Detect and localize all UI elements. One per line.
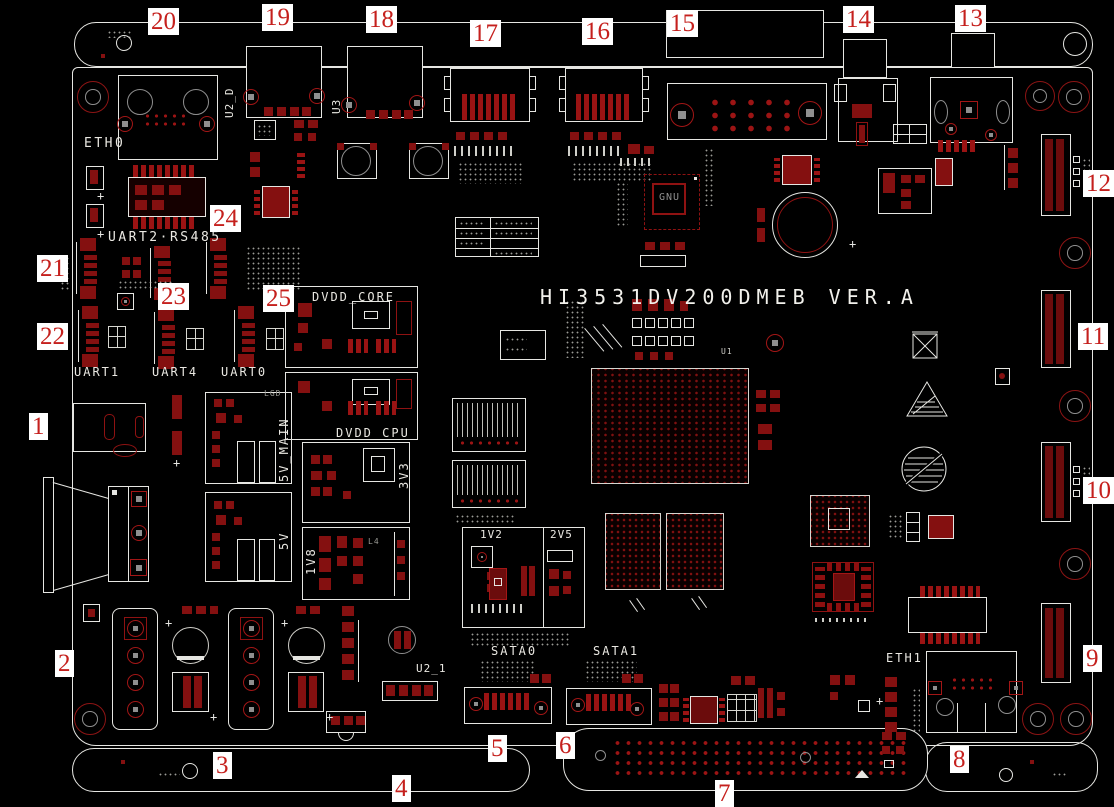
regulator-1v2-2v5 (462, 527, 585, 628)
smd-pad (628, 144, 640, 154)
smd-pad (882, 732, 892, 740)
resistor-pair (266, 328, 284, 350)
orientation-triangle (855, 770, 869, 778)
sata-pins (484, 693, 532, 710)
callout-19: 19 (262, 4, 293, 31)
uart-footprint (234, 306, 264, 366)
mounting-hole (1059, 390, 1091, 422)
smd-pad (404, 110, 413, 119)
db9-screw-post (670, 103, 694, 127)
capacitor-pad (90, 208, 98, 222)
smd-pad (1073, 478, 1080, 485)
mounting-hole (1058, 81, 1090, 113)
dvdd-core-label: DVDD_CORE (312, 291, 395, 303)
stipple (455, 514, 515, 524)
stipple (616, 182, 628, 226)
smd-pad (884, 760, 894, 768)
ddr-chip (666, 513, 724, 590)
bottom-left-rail-hole (182, 763, 198, 779)
callout-4: 4 (392, 775, 411, 802)
fiducial-dot (999, 373, 1005, 379)
callout-3: 3 (213, 752, 232, 779)
header-11-pins (1056, 294, 1064, 364)
power-pin (127, 620, 144, 637)
smd-pad (671, 318, 681, 328)
sata-post (469, 697, 483, 711)
cap-stripe (177, 656, 204, 660)
regulator-1v8 (302, 527, 410, 600)
soic-pins (133, 165, 197, 177)
db9-screw-post (798, 101, 822, 125)
ddr-chip (605, 513, 661, 590)
switch-pin (130, 559, 147, 576)
mounting-hole (1059, 237, 1091, 269)
cap-pad (409, 143, 416, 150)
smd-pad (250, 167, 260, 177)
qfp-pins (292, 189, 298, 215)
stipple (458, 162, 522, 184)
smd-pad (645, 242, 655, 250)
regulator-3v3 (302, 442, 410, 523)
db9-pins (706, 96, 798, 132)
electrolytic-cap (341, 146, 371, 176)
header-10-pins (1045, 446, 1053, 518)
soic-pins (920, 586, 980, 597)
smd-pad (290, 107, 299, 116)
crossed-box-symbol (911, 330, 939, 362)
uart0-label: UART0 (221, 366, 267, 378)
power-pin (127, 647, 144, 664)
smd-pad (758, 424, 772, 434)
sata1-label: SATA1 (593, 645, 639, 657)
uart-footprint (154, 308, 184, 368)
smd-pad (182, 606, 192, 614)
smd-pad (342, 670, 354, 680)
refdes-u3: U3 (331, 99, 342, 114)
polarity-mark: + (281, 618, 288, 628)
smd-pad (530, 674, 539, 683)
qfn-chip (812, 562, 874, 612)
mounting-hole (74, 703, 106, 735)
revision-table (455, 217, 539, 257)
eth1-pin-hole (936, 698, 954, 716)
smd-pad (665, 352, 673, 360)
rail-2v5-label: 2V5 (550, 529, 573, 540)
polarity-mark: + (326, 712, 333, 722)
callout-13: 13 (955, 5, 986, 32)
resistor-bank (906, 512, 920, 542)
chip (935, 158, 953, 186)
power-pin (243, 647, 260, 664)
pin1-dot (694, 177, 697, 180)
smd-pad (859, 125, 865, 143)
resistor-pair (186, 328, 204, 350)
mounting-hole (1025, 81, 1055, 111)
callout-11: 11 (1078, 323, 1108, 350)
pin-row (620, 158, 654, 166)
pin-column (297, 150, 305, 178)
rail-3v3-label: 3V3 (398, 461, 410, 489)
bottom-right-rail-hole (999, 768, 1013, 782)
smd-pad (379, 110, 388, 119)
header-10-pins (1056, 446, 1064, 518)
hdmi-tab (444, 98, 451, 112)
cap-pad (370, 143, 377, 150)
smd-pad (1008, 148, 1018, 158)
jack-slot-pad (104, 414, 115, 440)
smd-pad (308, 133, 316, 141)
mounting-hole (1059, 548, 1091, 580)
smd-pad (277, 107, 286, 116)
smd-pad (294, 120, 304, 128)
rail-stipple (158, 772, 180, 778)
fiducial-dot (88, 609, 95, 617)
smd-pad (296, 606, 306, 614)
eth1-shield-pad (1009, 681, 1023, 695)
usb-mount-pad (243, 89, 259, 105)
battery-plus: + (849, 239, 856, 249)
smd-pad (133, 270, 141, 278)
eth0-pins (143, 112, 191, 130)
polarity-mark: + (165, 618, 172, 628)
eth0-shield-pad (199, 116, 215, 132)
smd-pad (634, 674, 643, 683)
header-12-pins (1056, 139, 1064, 211)
pin-row (568, 146, 624, 156)
smd-pad (133, 257, 141, 265)
component-cluster (655, 668, 785, 728)
uart4-label: UART4 (152, 366, 198, 378)
inductor (172, 672, 209, 712)
header-9-pins (1045, 608, 1053, 678)
component-outline (640, 255, 686, 267)
smd-pad (885, 707, 897, 717)
smd-pad (632, 318, 642, 328)
stipple (888, 514, 902, 538)
refdes-u2-1: U2_1 (416, 663, 447, 674)
stipple (704, 148, 714, 206)
smd-pad (484, 132, 493, 140)
smd-pad (1008, 163, 1018, 173)
callout-20: 20 (148, 8, 179, 35)
usb-mount-pad (409, 95, 425, 111)
chip-pad (135, 185, 147, 195)
clock-chip-label: GNU (659, 194, 680, 202)
polarity-mark: + (97, 191, 104, 201)
rail-marker-dot (1030, 760, 1034, 764)
flex-connector (452, 398, 526, 452)
usb-mount-pad (309, 88, 325, 104)
polarity-mark: + (97, 229, 104, 239)
fiducial-dot (766, 334, 784, 352)
chip-pad (169, 185, 181, 195)
dvdd-cpu-label: DVDD_CPU (336, 427, 410, 439)
smd-pad (498, 132, 507, 140)
smd-pad (645, 318, 655, 328)
board-title: HI3531DV200DMEB VER.A (540, 286, 919, 308)
smd-pad (342, 622, 354, 632)
mounting-hole (77, 81, 109, 113)
smd-pad (770, 390, 780, 398)
refdes-u2-d: U2_D (224, 88, 235, 119)
polarity-mark: + (210, 712, 217, 722)
header-pad (412, 685, 421, 696)
callout-8: 8 (950, 746, 969, 773)
hdmi-tab (642, 76, 649, 90)
chip-pad (135, 200, 147, 210)
inductor-pad (404, 631, 411, 649)
switch-divider (128, 487, 129, 581)
eth0-label: ETH0 (84, 137, 125, 150)
smd-pad (770, 404, 780, 412)
switch-mark (112, 490, 117, 495)
rail-marker-dot (101, 54, 105, 58)
smd-pad (310, 606, 320, 614)
rail-1v8-label: 1V8 (305, 547, 317, 575)
uart1-label: UART1 (74, 366, 120, 378)
connector-14-shell (843, 39, 887, 78)
refdes-l4: L4 (368, 538, 380, 546)
smd-pad (675, 242, 685, 250)
rail-stipple (107, 30, 133, 38)
smd-pad (342, 606, 354, 616)
eth1-shield-pad (928, 681, 942, 695)
chip-pins (814, 158, 820, 182)
connector-13-shell (951, 33, 995, 68)
refdes-lgd: LGD (264, 388, 281, 399)
callout-17: 17 (470, 20, 501, 47)
smd-pad (671, 336, 681, 346)
switch-pin (131, 491, 147, 507)
cap-stripe (293, 656, 320, 660)
callout-21: 21 (37, 255, 68, 282)
smd-pad (622, 674, 631, 683)
smd-pad (830, 692, 838, 700)
chip-pins (774, 158, 780, 182)
uart-footprint (78, 306, 108, 366)
smd-pad (302, 107, 311, 116)
smd-pad (635, 352, 643, 360)
smd-pad (896, 746, 904, 754)
callout-14: 14 (843, 6, 874, 33)
smd-pad (684, 336, 694, 346)
divider (957, 703, 958, 732)
eth1-label: ETH1 (886, 652, 923, 664)
smd-pad (1073, 156, 1080, 163)
rail-stipple (1052, 772, 1068, 778)
no-hand-circle-symbol (898, 444, 950, 494)
hdmi-tab (559, 76, 566, 90)
uart-footprint (206, 238, 236, 298)
smd-pad (756, 404, 766, 412)
smd-pad (830, 675, 840, 685)
smd-pad (885, 722, 897, 732)
smd-pad (658, 336, 668, 346)
jack-pad (985, 129, 997, 141)
smd-pad (684, 318, 694, 328)
hdmi-tab (529, 98, 536, 112)
jack-slot-pad (135, 416, 144, 438)
hdmi-tab (444, 76, 451, 90)
soic-pins (920, 633, 980, 644)
pin-row (938, 140, 976, 152)
smd-pad (1073, 466, 1080, 473)
battery-pad (757, 208, 765, 222)
header-11-pins (1045, 294, 1053, 364)
inductor (388, 626, 416, 654)
uart-footprint (76, 238, 106, 298)
rail-1v2-label: 1V2 (480, 529, 503, 540)
uart2-rs485-label: UART2·RS485 (108, 231, 222, 244)
pin-row (815, 618, 871, 622)
battery-pad (757, 228, 765, 242)
callout-22: 22 (37, 323, 68, 350)
stipple (912, 688, 920, 732)
fiducial-dot (121, 297, 130, 306)
smd-pad (645, 336, 655, 346)
hdmi-tab (559, 98, 566, 112)
rail-hole-right (1063, 32, 1087, 56)
mini-table (893, 124, 927, 144)
eth1-pins (950, 676, 994, 694)
coin-battery-ring (777, 197, 833, 253)
smd-pad (342, 654, 354, 664)
callout-7: 7 (715, 780, 734, 807)
power-pin (243, 701, 260, 718)
smd-pad (570, 132, 579, 140)
flex-connector (452, 460, 526, 508)
smd-pad (470, 132, 479, 140)
chip-pad (152, 200, 164, 210)
smd-pad (632, 336, 642, 346)
header-pad (424, 685, 433, 696)
callout-10: 10 (1083, 477, 1114, 504)
smd-pad (122, 270, 130, 278)
cpu-hi3531dv200 (591, 368, 749, 484)
rocker-switch-tab (43, 477, 54, 593)
stipple (480, 660, 536, 682)
rail-5v-main-label: 5V_MAIN (278, 417, 290, 482)
power-pin (243, 620, 260, 637)
stipple (257, 124, 273, 136)
qfp-chip (928, 515, 954, 539)
power-pin (127, 674, 144, 691)
smd-pad (584, 132, 593, 140)
callout-18: 18 (366, 6, 397, 33)
mounting-hole (1022, 703, 1054, 735)
label-box (500, 330, 546, 360)
expansion-connector-hole (595, 750, 606, 761)
smd-pad (758, 440, 772, 450)
smd-pad (1008, 178, 1018, 188)
smd-pad (756, 390, 766, 398)
capacitor-pad (172, 395, 182, 419)
callout-5: 5 (488, 735, 507, 762)
component-outline (878, 168, 932, 214)
callout-24: 24 (210, 205, 241, 232)
smd-pad (1073, 168, 1080, 175)
cap-pad (337, 143, 344, 150)
smd-pad (542, 674, 551, 683)
jack-slot-pad (113, 444, 137, 457)
smd-pad (885, 677, 897, 687)
callout-12: 12 (1083, 170, 1114, 197)
connector-14-ear (834, 84, 847, 102)
eth1-pin-hole (998, 696, 1016, 714)
smd-pad (650, 352, 658, 360)
smd-pad (250, 152, 260, 162)
callout-1: 1 (29, 413, 48, 440)
rail-5v-label: 5V (278, 532, 290, 550)
smd-pad (342, 638, 354, 648)
pcb-layout-canvas: ETH0 U2_D U3 (0, 0, 1114, 807)
rail-marker-dot (121, 760, 125, 764)
header-pad (399, 685, 408, 696)
smd-pad (294, 133, 302, 141)
trace (1004, 145, 1005, 190)
header-pad (386, 685, 395, 696)
callout-2: 2 (55, 650, 74, 677)
smd-pad (366, 110, 375, 119)
usb-mount-pad (341, 97, 357, 113)
smd-pad (264, 107, 273, 116)
electrolytic-cap (413, 146, 443, 176)
smd-pad (1073, 180, 1080, 187)
polarity-mark: + (876, 696, 883, 706)
smd-pad (196, 606, 206, 614)
smd-pad (392, 110, 401, 119)
pin-row (454, 146, 512, 156)
expansion-connector-hole (800, 752, 811, 763)
smd-pad (896, 732, 906, 740)
bottom-left-rail (72, 748, 530, 792)
smd-pad (612, 132, 621, 140)
header-9-pins (1056, 608, 1064, 678)
power-pin (127, 701, 144, 718)
smd-pad (845, 675, 855, 685)
refdes-u1: U1 (721, 348, 733, 356)
inductor-pad (394, 631, 401, 649)
header-12-pins (1045, 139, 1053, 211)
smd-pad (644, 146, 654, 154)
callout-23: 23 (158, 283, 189, 310)
sata-post (630, 702, 644, 716)
smd-pad (660, 242, 670, 250)
connector-14-ear (883, 84, 896, 102)
jack-slot (934, 100, 948, 124)
inductor (288, 672, 324, 712)
capacitor-pad (172, 431, 182, 455)
phy-chip (908, 597, 987, 633)
chip (782, 155, 812, 185)
callout-15: 15 (667, 10, 698, 37)
bga-center-mark (828, 508, 850, 530)
smd-pad (658, 318, 668, 328)
smd-pad (882, 746, 890, 754)
sata-post (534, 701, 548, 715)
jack-pad (960, 101, 978, 119)
esd-triangle-symbol (905, 380, 949, 420)
divider (985, 703, 986, 732)
hdmi-pins (576, 94, 630, 120)
jack-pad (945, 123, 957, 135)
sata0-label: SATA0 (491, 645, 537, 657)
mounting-hole (1060, 703, 1092, 735)
hdmi-tab (529, 76, 536, 90)
polarity-mark: + (173, 458, 180, 468)
smd-pad (308, 120, 318, 128)
hdmi-pins (462, 94, 518, 120)
